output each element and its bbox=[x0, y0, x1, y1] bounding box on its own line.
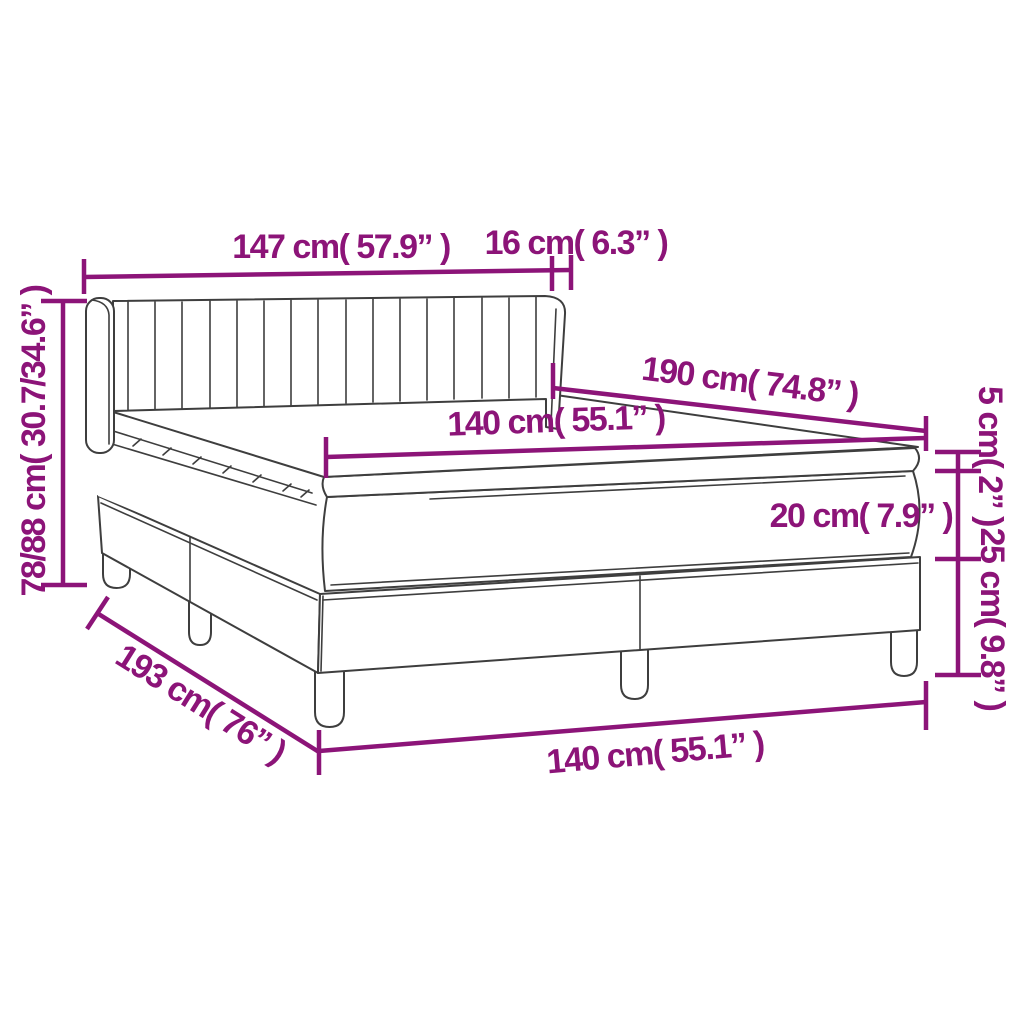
headboard-width-label: 147 cm( 57.9” ) bbox=[232, 228, 450, 266]
total-length-label: 193 cm( 76” ) bbox=[109, 637, 292, 771]
topper-height-label: 5 cm( 2” ) bbox=[971, 386, 1009, 526]
total-height-label: 78/88 cm( 30.7/34.6” ) bbox=[15, 285, 53, 596]
mattress-height-label: 20 cm( 7.9” ) bbox=[770, 497, 953, 535]
dimension-diagram: 147 cm( 57.9” ) 16 cm( 6.3” ) 78/88 cm( … bbox=[0, 0, 1024, 1024]
dim-tick bbox=[87, 597, 108, 629]
mattress-length-label: 190 cm( 74.8” ) bbox=[640, 350, 861, 414]
diagram-canvas: 147 cm( 57.9” ) 16 cm( 6.3” ) 78/88 cm( … bbox=[0, 0, 1024, 1024]
headboard-depth-label: 16 cm( 6.3” ) bbox=[485, 224, 668, 262]
headboard-left-post bbox=[86, 298, 114, 453]
base-height-label: 25 cm( 9.8” ) bbox=[973, 528, 1011, 711]
bed-width-bottom-label: 140 cm( 55.1” ) bbox=[545, 724, 765, 781]
mattress-width-top-label: 140 cm( 55.1” ) bbox=[447, 398, 666, 444]
dim-line bbox=[84, 270, 571, 277]
